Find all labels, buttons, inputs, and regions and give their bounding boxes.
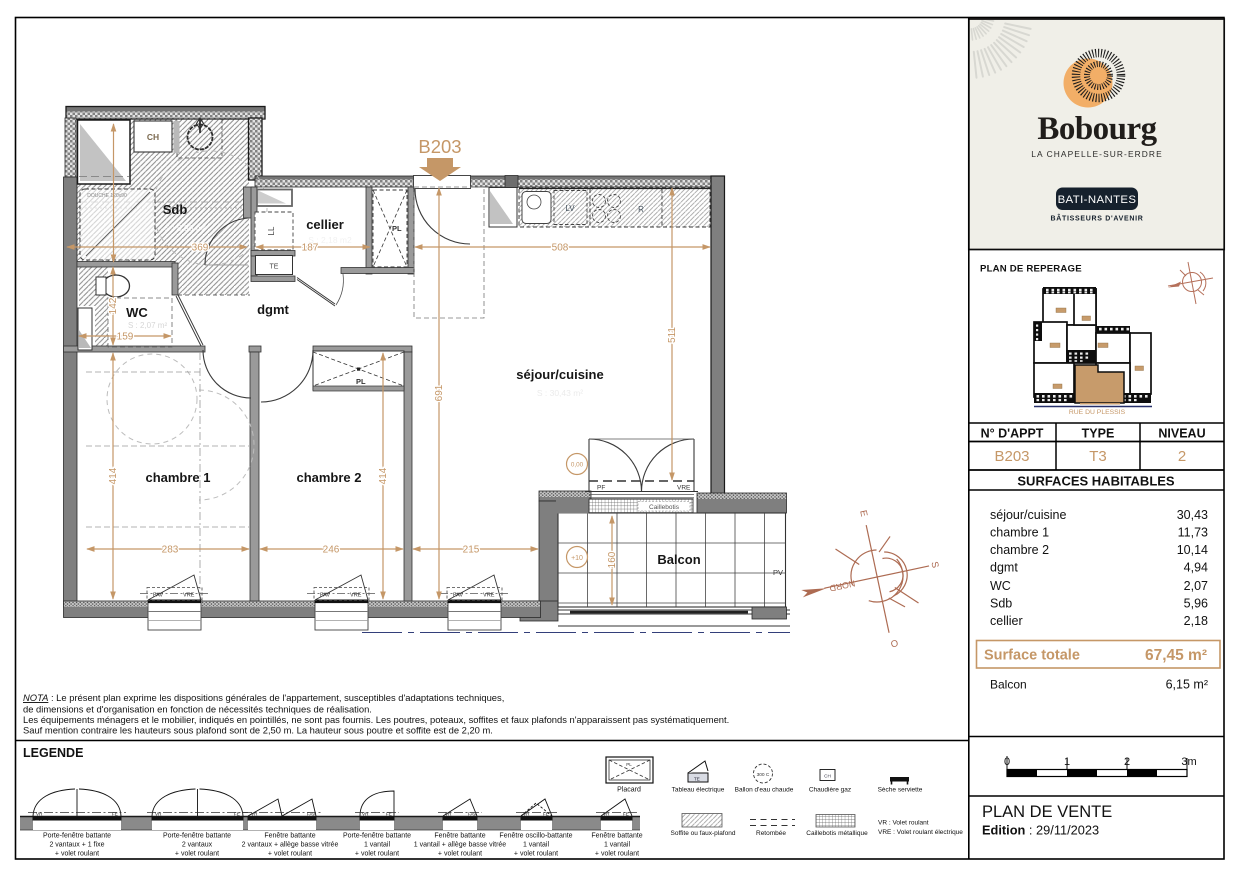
svg-text:S : 30,43 m²: S : 30,43 m² (537, 388, 583, 398)
svg-text:FAV: FAV (153, 593, 163, 599)
svg-text:TE: TE (694, 777, 700, 782)
svg-text:VR: VR (523, 812, 530, 817)
svg-text:dgmt: dgmt (257, 302, 289, 317)
svg-text:FE: FE (623, 812, 629, 817)
svg-text:WC: WC (126, 305, 148, 320)
svg-text:1 vantail + allège basse vitré: 1 vantail + allège basse vitrée (414, 842, 507, 849)
svg-text:S : 2,07 m²: S : 2,07 m² (128, 321, 167, 330)
svg-text:cellier: cellier (990, 614, 1023, 628)
svg-text:S : 2,18 m2: S : 2,18 m2 (308, 235, 352, 245)
svg-text:PL: PL (626, 762, 632, 767)
svg-text:Sdb: Sdb (990, 597, 1012, 611)
svg-text:300 C: 300 C (757, 772, 770, 778)
svg-text:Les équipements ménagers et l: Les équipements ménagers et le mobilier,… (23, 714, 729, 725)
svg-text:+10: +10 (571, 555, 583, 562)
svg-text:2 vantaux + allège basse vitré: 2 vantaux + allège basse vitrée (242, 842, 339, 849)
svg-text:CH: CH (824, 774, 831, 779)
svg-text:chambre 1: chambre 1 (145, 470, 210, 485)
svg-text:+ volet roulant: + volet roulant (514, 851, 558, 858)
svg-text:Chaudière gaz: Chaudière gaz (809, 787, 851, 794)
svg-text:Sdb: Sdb (163, 202, 188, 217)
svg-text:FE: FE (386, 812, 392, 817)
svg-text:2,18: 2,18 (1184, 614, 1208, 628)
svg-text:414: 414 (108, 467, 119, 484)
svg-text:B203: B203 (418, 136, 461, 157)
svg-text:VR: VR (251, 812, 258, 817)
svg-text:11,73: 11,73 (1178, 526, 1208, 540)
svg-text:T3: T3 (1089, 448, 1107, 465)
svg-text:DOUCHE 120x90: DOUCHE 120x90 (87, 193, 127, 199)
svg-text:S : 5,96 m²: S : 5,96 m² (164, 223, 206, 233)
svg-text:TYPE: TYPE (1082, 427, 1115, 441)
svg-text:LV: LV (565, 204, 575, 213)
svg-text:B203: B203 (994, 448, 1029, 465)
svg-text:N° D'APPT: N° D'APPT (981, 427, 1044, 441)
svg-text:1 vantail: 1 vantail (523, 842, 550, 849)
svg-text:246: 246 (323, 545, 340, 556)
svg-text:2,07: 2,07 (1184, 579, 1208, 593)
svg-text:TE: TE (270, 264, 279, 271)
svg-text:LL: LL (267, 226, 276, 235)
svg-text:508: 508 (552, 243, 569, 254)
svg-text:160: 160 (607, 551, 618, 568)
svg-text:Fenêtre battante: Fenêtre battante (264, 833, 315, 840)
svg-text:Caillebotis métallique: Caillebotis métallique (806, 830, 868, 837)
svg-text:Retombée: Retombée (756, 830, 786, 837)
svg-text:30,43: 30,43 (1177, 508, 1208, 522)
svg-text:+ volet roulant: + volet roulant (355, 851, 399, 858)
svg-text:RUE DU PLESSIS: RUE DU PLESSIS (1069, 409, 1126, 416)
svg-text:séjour/cuisine: séjour/cuisine (516, 367, 603, 382)
svg-text:215: 215 (463, 545, 480, 556)
svg-text:0,00: 0,00 (571, 462, 584, 469)
svg-text:Bobourg: Bobourg (1037, 111, 1157, 147)
svg-text:VR: VR (445, 812, 452, 817)
svg-text:2: 2 (1178, 448, 1186, 465)
svg-text:Tableau électrique: Tableau électrique (672, 787, 725, 794)
svg-text:BATI-NANTES: BATI-NANTES (1058, 194, 1137, 206)
svg-text:PL: PL (356, 377, 366, 386)
svg-text:PLAN DE VENTE: PLAN DE VENTE (982, 803, 1112, 821)
svg-text:1 vantail: 1 vantail (604, 842, 631, 849)
svg-text:67,45 m²: 67,45 m² (1145, 647, 1207, 664)
svg-text:CH: CH (147, 132, 159, 142)
svg-text:6,15 m²: 6,15 m² (1166, 678, 1208, 692)
svg-text:142: 142 (108, 297, 119, 314)
svg-text:FAV: FAV (307, 812, 316, 817)
svg-text:+ volet roulant: + volet roulant (55, 851, 99, 858)
svg-text:de dimensions et d'organisatio: de dimensions et d'organisation en fonct… (23, 704, 372, 715)
svg-text:Balcon: Balcon (657, 552, 700, 567)
svg-text:414: 414 (378, 467, 389, 484)
svg-text:+ volet roulant: + volet roulant (438, 851, 482, 858)
svg-text:4,94: 4,94 (1184, 561, 1208, 575)
svg-text:VRE: VRE (677, 485, 691, 492)
svg-text:NIVEAU: NIVEAU (1158, 427, 1205, 441)
svg-text:10,14: 10,14 (1177, 543, 1208, 557)
svg-text:1 vantail: 1 vantail (364, 842, 391, 849)
svg-text:cellier: cellier (306, 217, 344, 232)
svg-text:dgmt: dgmt (990, 561, 1018, 575)
svg-text:PV: PV (773, 568, 783, 577)
svg-text:5,96: 5,96 (1184, 597, 1208, 611)
svg-text:Sèche serviette: Sèche serviette (878, 787, 923, 794)
svg-text:LEGENDE: LEGENDE (23, 746, 83, 760)
svg-text:+ volet roulant: + volet roulant (268, 851, 312, 858)
svg-text:FE: FE (543, 812, 549, 817)
svg-text:Porte-fenêtre battante: Porte-fenêtre battante (343, 833, 411, 840)
svg-text:FE: FE (112, 812, 118, 817)
svg-text:Ballon d'eau chaude: Ballon d'eau chaude (735, 787, 794, 794)
svg-text:FAV: FAV (468, 812, 477, 817)
svg-text:Edition : 29/11/2023: Edition : 29/11/2023 (982, 823, 1099, 838)
svg-text:Fenêtre battante: Fenêtre battante (591, 833, 642, 840)
svg-text:Balcon: Balcon (990, 678, 1027, 692)
svg-text:3m: 3m (1181, 756, 1196, 768)
svg-text:VR: VR (362, 812, 369, 817)
svg-text:Placard: Placard (617, 787, 641, 794)
svg-text:Sauf mention contraire les hau: Sauf mention contraire les hauteurs sous… (23, 725, 493, 736)
svg-text:chambre 2: chambre 2 (296, 470, 361, 485)
svg-text:séjour/cuisine: séjour/cuisine (990, 508, 1066, 522)
svg-text:VR: VR (603, 812, 610, 817)
svg-text:PLAN DE REPERAGE: PLAN DE REPERAGE (980, 264, 1082, 275)
svg-text:691: 691 (434, 384, 445, 401)
svg-text:PF: PF (597, 485, 605, 492)
svg-text:WC: WC (990, 579, 1011, 593)
svg-text:VRE: VRE (183, 593, 195, 599)
svg-text:NOTA : Le présent plan exprime: NOTA : Le présent plan exprime les dispo… (23, 692, 504, 703)
svg-text:2 vantaux + 1 fixe: 2 vantaux + 1 fixe (49, 842, 104, 849)
svg-text:chambre 2: chambre 2 (990, 543, 1049, 557)
svg-text:Porte-fenêtre battante: Porte-fenêtre battante (43, 833, 111, 840)
svg-text:369: 369 (192, 243, 209, 254)
svg-text:SURFACES HABITABLES: SURFACES HABITABLES (1017, 474, 1175, 489)
svg-text:+ volet roulant: + volet roulant (595, 851, 639, 858)
svg-text:VRE : Volet roulant électrique: VRE : Volet roulant électrique (878, 829, 963, 836)
svg-text:Caillebotis: Caillebotis (649, 504, 680, 511)
svg-text:BÂTISSEURS D'AVENIR: BÂTISSEURS D'AVENIR (1050, 214, 1143, 223)
svg-text:chambre 1: chambre 1 (990, 526, 1049, 540)
svg-text:Fenêtre oscillo-battante: Fenêtre oscillo-battante (499, 833, 572, 840)
svg-text:Soffite ou faux-plafond: Soffite ou faux-plafond (671, 830, 736, 837)
svg-text:Porte-fenêtre battante: Porte-fenêtre battante (163, 833, 231, 840)
svg-text:159: 159 (117, 332, 134, 343)
svg-text:PL: PL (392, 224, 402, 233)
svg-text:R: R (638, 205, 644, 214)
svg-text:Fenêtre battante: Fenêtre battante (434, 833, 485, 840)
svg-text:VR : Volet roulant: VR : Volet roulant (878, 820, 929, 827)
svg-text:2 vantaux: 2 vantaux (182, 842, 213, 849)
svg-text:283: 283 (162, 545, 179, 556)
svg-text:Surface totale: Surface totale (984, 648, 1080, 664)
svg-text:LA CHAPELLE-SUR-ERDRE: LA CHAPELLE-SUR-ERDRE (1031, 149, 1163, 159)
svg-text:VR: VR (155, 812, 162, 817)
svg-text:FE: FE (234, 812, 240, 817)
svg-text:+ volet roulant: + volet roulant (175, 851, 219, 858)
svg-text:511: 511 (667, 327, 678, 343)
svg-text:VR: VR (36, 812, 43, 817)
